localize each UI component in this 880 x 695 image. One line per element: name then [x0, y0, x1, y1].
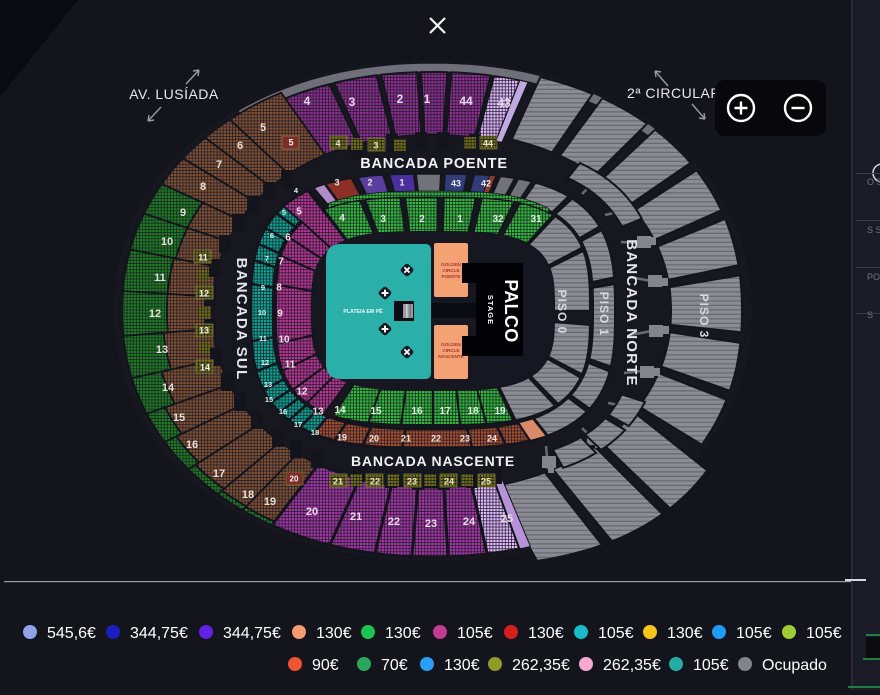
svg-text:GOLDEN: GOLDEN: [441, 342, 461, 347]
svg-text:S: S: [867, 310, 873, 320]
svg-text:18: 18: [242, 489, 254, 501]
svg-text:44: 44: [459, 94, 473, 108]
svg-text:12: 12: [261, 358, 269, 367]
svg-text:BANCADA NORTE: BANCADA NORTE: [623, 239, 640, 387]
svg-text:18: 18: [467, 406, 479, 417]
svg-text:23: 23: [407, 477, 417, 487]
svg-text:14: 14: [162, 382, 175, 394]
svg-text:43: 43: [497, 96, 511, 110]
svg-text:NASCENTE: NASCENTE: [438, 354, 463, 359]
svg-text:5: 5: [296, 207, 302, 218]
svg-text:3: 3: [334, 178, 339, 188]
svg-text:1: 1: [424, 92, 431, 106]
svg-text:17: 17: [294, 420, 302, 429]
svg-text:GOLDEN: GOLDEN: [441, 262, 461, 267]
svg-text:18: 18: [311, 428, 319, 437]
svg-text:24: 24: [487, 434, 497, 444]
svg-text:BANCADA POENTE: BANCADA POENTE: [360, 156, 508, 172]
svg-text:8: 8: [200, 181, 206, 193]
svg-text:2: 2: [397, 92, 404, 106]
svg-text:14: 14: [200, 363, 210, 373]
svg-text:11: 11: [154, 272, 166, 284]
svg-text:545,6€: 545,6€: [47, 625, 96, 642]
svg-text:4: 4: [304, 94, 311, 108]
svg-text:15: 15: [370, 406, 382, 417]
svg-text:POENTE: POENTE: [442, 274, 461, 279]
svg-text:22: 22: [370, 477, 380, 487]
svg-text:19: 19: [494, 406, 506, 417]
svg-text:19: 19: [264, 496, 276, 508]
svg-text:9: 9: [180, 207, 186, 219]
svg-text:PISO 3: PISO 3: [697, 294, 711, 339]
svg-text:S S: S S: [867, 225, 880, 235]
svg-text:9: 9: [277, 309, 283, 320]
svg-text:12: 12: [199, 289, 209, 299]
svg-text:20: 20: [369, 434, 379, 444]
svg-text:20: 20: [290, 475, 299, 484]
svg-text:3: 3: [349, 95, 356, 109]
svg-text:6: 6: [285, 233, 291, 244]
svg-text:19: 19: [337, 433, 347, 443]
svg-text:130€: 130€: [385, 625, 421, 642]
svg-text:2: 2: [419, 214, 425, 225]
svg-text:21: 21: [333, 477, 343, 487]
svg-text:3: 3: [373, 141, 378, 151]
svg-text:BANCADA NASCENTE: BANCADA NASCENTE: [351, 453, 515, 469]
svg-text:Ocupado: Ocupado: [762, 657, 827, 674]
svg-text:17: 17: [439, 406, 451, 417]
svg-text:6: 6: [237, 140, 243, 152]
svg-text:11: 11: [259, 334, 267, 343]
svg-text:25: 25: [481, 477, 491, 487]
svg-text:24: 24: [444, 477, 454, 487]
svg-text:4: 4: [335, 139, 340, 149]
svg-text:22: 22: [431, 434, 441, 444]
svg-text:17: 17: [213, 468, 225, 480]
svg-text:PO: PO: [867, 272, 880, 282]
svg-text:44: 44: [483, 139, 493, 149]
svg-text:105€: 105€: [736, 625, 772, 642]
svg-text:13: 13: [199, 326, 209, 336]
svg-text:4: 4: [339, 213, 345, 224]
svg-text:2ª CIRCULAR: 2ª CIRCULAR: [627, 85, 721, 101]
svg-text:14: 14: [334, 405, 346, 416]
svg-text:21: 21: [350, 511, 362, 523]
svg-text:5: 5: [288, 138, 293, 148]
svg-text:2: 2: [367, 178, 372, 188]
svg-text:7: 7: [216, 159, 222, 171]
svg-text:CIRCLE: CIRCLE: [442, 268, 459, 273]
svg-text:130€: 130€: [667, 625, 703, 642]
svg-text:13: 13: [156, 344, 168, 356]
svg-text:O S: O S: [867, 177, 880, 187]
svg-text:15: 15: [265, 395, 273, 404]
svg-text:7: 7: [265, 254, 269, 263]
svg-text:20: 20: [306, 506, 318, 518]
svg-text:11: 11: [285, 360, 296, 371]
svg-text:1: 1: [399, 178, 404, 188]
svg-text:262,35€: 262,35€: [512, 657, 570, 674]
svg-text:6: 6: [270, 231, 274, 240]
svg-text:PLATEIA EM PÉ: PLATEIA EM PÉ: [343, 307, 383, 315]
svg-text:90€: 90€: [312, 657, 339, 674]
svg-text:12: 12: [149, 308, 161, 320]
svg-text:8: 8: [276, 283, 282, 294]
svg-text:10: 10: [258, 308, 266, 317]
svg-text:105€: 105€: [598, 625, 634, 642]
svg-text:344,75€: 344,75€: [130, 625, 188, 642]
svg-text:23: 23: [460, 434, 470, 444]
svg-text:9: 9: [261, 283, 265, 292]
svg-text:105€: 105€: [806, 625, 842, 642]
svg-text:23: 23: [425, 518, 437, 530]
svg-text:22: 22: [388, 516, 400, 528]
svg-text:262,35€: 262,35€: [603, 657, 661, 674]
svg-text:15: 15: [173, 412, 185, 424]
svg-text:344,75€: 344,75€: [223, 625, 281, 642]
svg-text:16: 16: [411, 406, 423, 417]
svg-text:70€: 70€: [381, 657, 408, 674]
svg-text:31: 31: [530, 214, 542, 225]
svg-text:3: 3: [380, 214, 386, 225]
svg-text:5: 5: [260, 122, 266, 134]
svg-text:130€: 130€: [316, 625, 352, 642]
svg-text:130€: 130€: [528, 625, 564, 642]
svg-text:BANCADA SUL: BANCADA SUL: [233, 258, 250, 381]
svg-text:5: 5: [282, 208, 286, 217]
svg-text:12: 12: [296, 387, 308, 398]
svg-text:105€: 105€: [693, 657, 729, 674]
svg-text:130€: 130€: [444, 657, 480, 674]
svg-text:25: 25: [501, 513, 513, 525]
svg-text:21: 21: [401, 434, 411, 444]
svg-text:13: 13: [312, 407, 324, 418]
svg-text:32: 32: [492, 214, 504, 225]
svg-text:STAGE: STAGE: [486, 295, 495, 325]
svg-text:42: 42: [481, 179, 491, 189]
svg-text:10: 10: [278, 335, 290, 346]
svg-text:13: 13: [264, 380, 272, 389]
svg-text:1: 1: [457, 214, 463, 225]
svg-text:PALCO: PALCO: [501, 279, 521, 342]
svg-text:24: 24: [463, 516, 476, 528]
svg-text:CIRCLE: CIRCLE: [442, 348, 459, 353]
svg-text:AV. LUSÍADA: AV. LUSÍADA: [129, 86, 219, 102]
svg-text:10: 10: [161, 236, 173, 248]
svg-text:105€: 105€: [457, 625, 493, 642]
svg-text:PISO 1: PISO 1: [597, 292, 611, 337]
svg-text:7: 7: [278, 257, 284, 268]
svg-text:11: 11: [198, 253, 208, 263]
svg-text:43: 43: [451, 179, 461, 189]
svg-text:PISO 0: PISO 0: [555, 290, 569, 335]
svg-text:16: 16: [186, 439, 198, 451]
svg-text:16: 16: [279, 407, 287, 416]
